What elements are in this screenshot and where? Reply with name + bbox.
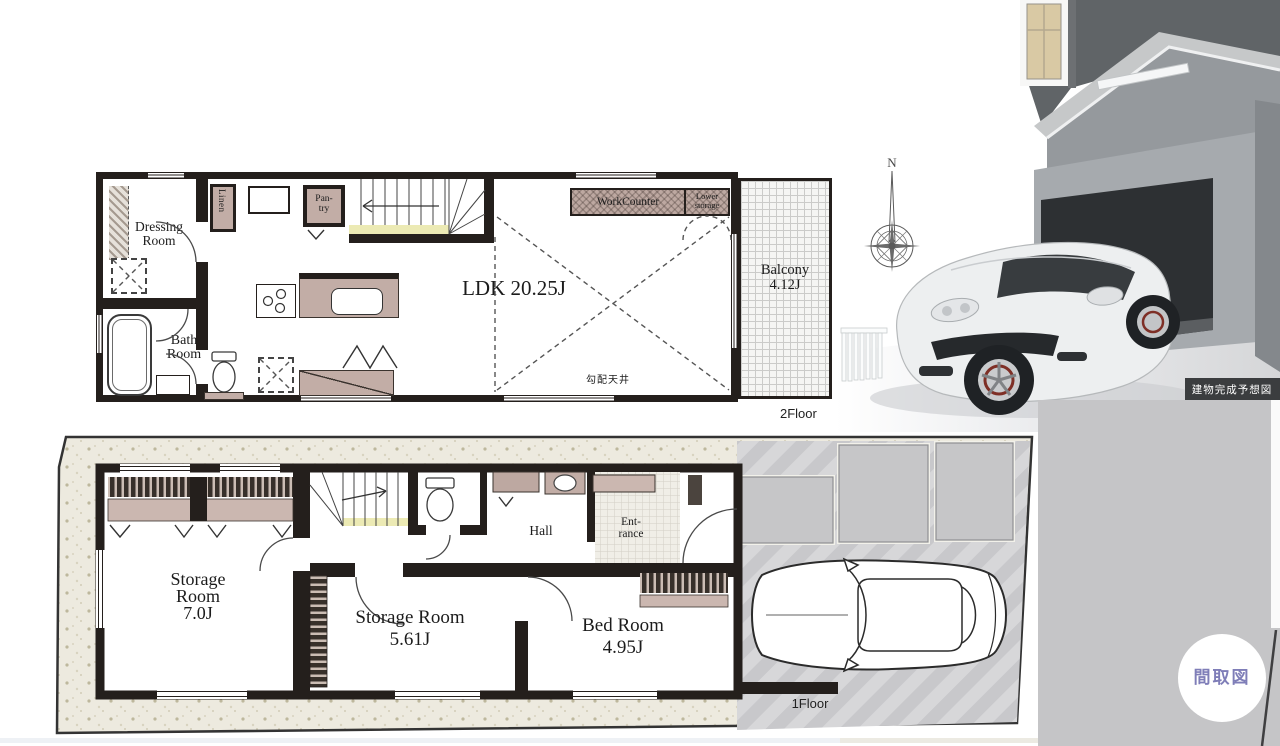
storage561-label: Storage Room bbox=[355, 607, 464, 628]
floor1-tag: 1Floor bbox=[792, 696, 830, 711]
bath-counter bbox=[156, 375, 190, 395]
storage7-size: 7.0J bbox=[183, 603, 213, 623]
linen-closet: Linen bbox=[210, 184, 236, 232]
storage561-size: 5.61J bbox=[390, 629, 431, 650]
upper-window bbox=[1020, 0, 1076, 88]
tall-cabinet bbox=[248, 186, 290, 214]
shoe-cabinet bbox=[593, 475, 655, 492]
lower-storage-label2: storage bbox=[686, 201, 728, 210]
floor-plan-2f: Balcony 4.12J Dressing Room Linen bbox=[96, 170, 840, 410]
balcony-label: Balcony bbox=[741, 263, 829, 278]
wall bbox=[196, 262, 208, 309]
pantry-label2: try bbox=[307, 205, 341, 215]
compass-rose-icon: N bbox=[850, 152, 940, 274]
floor2-tag: 2Floor bbox=[780, 406, 836, 421]
bookshelf bbox=[310, 575, 327, 687]
window bbox=[301, 395, 391, 402]
work-counter-label: WorkCounter bbox=[572, 190, 684, 214]
entrance-label2: rance bbox=[619, 528, 644, 540]
compass-north-label: N bbox=[887, 155, 897, 170]
window bbox=[576, 172, 656, 179]
laundry-space bbox=[493, 472, 539, 492]
bedroom-label: Bed Room bbox=[582, 615, 664, 636]
wall bbox=[349, 234, 494, 243]
badge-label: 間取図 bbox=[1194, 668, 1251, 687]
panel-edge-highlight bbox=[1271, 400, 1280, 628]
floor-plan-sheet: 建物完成予想図 間取図 N Balcony 4.12J bbox=[0, 0, 1280, 746]
dressing-room-label2: Room bbox=[118, 234, 200, 248]
window bbox=[148, 172, 184, 179]
balcony-size: 4.12J bbox=[741, 278, 829, 293]
bedroom-closet-shelf bbox=[640, 573, 728, 593]
rear-wheel bbox=[1126, 295, 1180, 349]
wall bbox=[103, 298, 206, 309]
stove-icon bbox=[256, 284, 296, 318]
work-counter: WorkCounter Lower storage bbox=[570, 188, 730, 216]
render-caption: 建物完成予想図 bbox=[1185, 378, 1280, 400]
sink-icon bbox=[331, 288, 383, 315]
bathtub-icon bbox=[107, 314, 152, 396]
bath-window bbox=[96, 315, 103, 353]
car-plan-icon bbox=[752, 559, 1006, 671]
bath-room-label: Bath bbox=[151, 334, 217, 348]
fence bbox=[841, 328, 887, 381]
render-caption-text: 建物完成予想図 bbox=[1192, 383, 1273, 396]
locker bbox=[688, 475, 702, 505]
dressing-room-label: Dressing bbox=[118, 220, 200, 234]
open-hatch bbox=[111, 258, 147, 294]
bedroom-closet-counter bbox=[640, 595, 728, 607]
ldk-label: LDK 20.25J bbox=[444, 278, 584, 299]
kitchen-counter bbox=[299, 273, 399, 318]
toilet-icon-1f bbox=[426, 478, 454, 521]
cabinet bbox=[299, 370, 394, 396]
front-wheel bbox=[964, 345, 1034, 415]
linen-label: Linen bbox=[217, 189, 227, 213]
bedroom-size: 4.95J bbox=[603, 637, 644, 658]
pantry: Pan- try bbox=[303, 185, 345, 227]
floor-plan-badge: 間取図 bbox=[1178, 634, 1266, 722]
balcony-window bbox=[731, 234, 738, 348]
balcony: Balcony 4.12J bbox=[738, 178, 832, 399]
toilet-floor bbox=[204, 392, 244, 400]
toilet-icon bbox=[208, 350, 240, 394]
sloped-ceiling-label: 勾配天井 bbox=[568, 376, 648, 386]
hall-label: Hall bbox=[529, 523, 552, 538]
entrance-label: Ent- bbox=[621, 516, 641, 528]
wall bbox=[196, 179, 208, 222]
floor-plan-1f: Storage Room 7.0J Storage Room 5.61J Bed… bbox=[40, 425, 1080, 746]
open-hatch bbox=[258, 357, 294, 393]
window bbox=[504, 395, 614, 402]
